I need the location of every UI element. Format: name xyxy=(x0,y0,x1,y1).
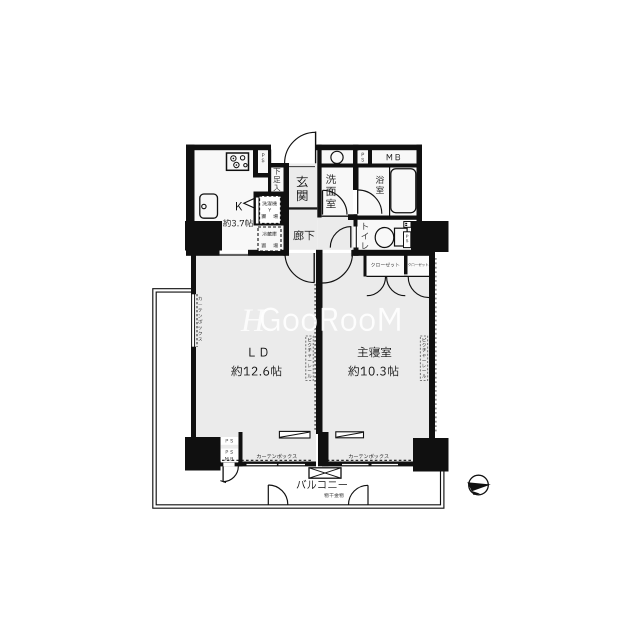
svg-text:H: H xyxy=(240,303,267,339)
